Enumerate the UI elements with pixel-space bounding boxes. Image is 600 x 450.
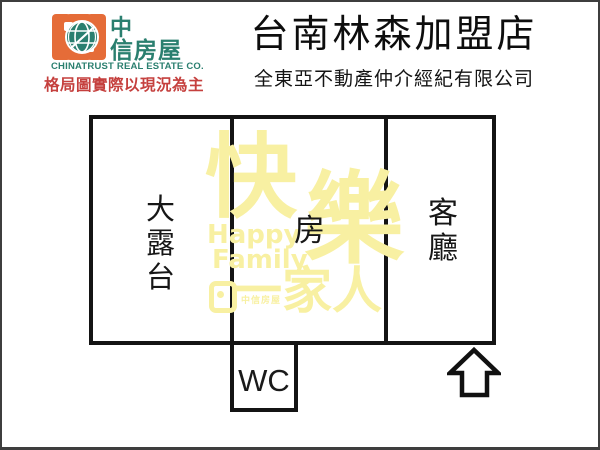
- watermark-char-kuai: 快: [205, 132, 297, 224]
- store-title: 台南林森加盟店: [220, 12, 568, 58]
- layout-disclaimer-text: 格局圖實際以現況為主: [44, 73, 204, 95]
- room-label-wc: WC: [230, 363, 298, 399]
- watermark-logo-icon: [209, 281, 237, 313]
- entrance-arrow-icon: [447, 346, 501, 399]
- logo-name-line1: 中: [110, 17, 132, 39]
- watermark-phrase-family: 一家人: [232, 266, 382, 316]
- room-label-terrace: 大露台: [142, 193, 179, 295]
- room-label-living-room: 客廳: [424, 196, 462, 266]
- logo-company-en: CHINATRUST REAL ESTATE CO.: [51, 61, 204, 72]
- globe-icon: [65, 20, 99, 54]
- watermark-logo-text: 中信房屋: [241, 297, 285, 306]
- agency-name: 全東亞不動產仲介經紀有限公司: [220, 64, 568, 91]
- chinatrust-logo-icon: [52, 14, 106, 61]
- logo-name-line2: 信房屋: [110, 39, 182, 62]
- watermark-logo-dot: [217, 291, 224, 298]
- floorplan-page: 中 信房屋 CHINATRUST REAL ESTATE CO. 格局圖實際以現…: [0, 0, 600, 450]
- room-label-bedroom: 房: [294, 214, 325, 248]
